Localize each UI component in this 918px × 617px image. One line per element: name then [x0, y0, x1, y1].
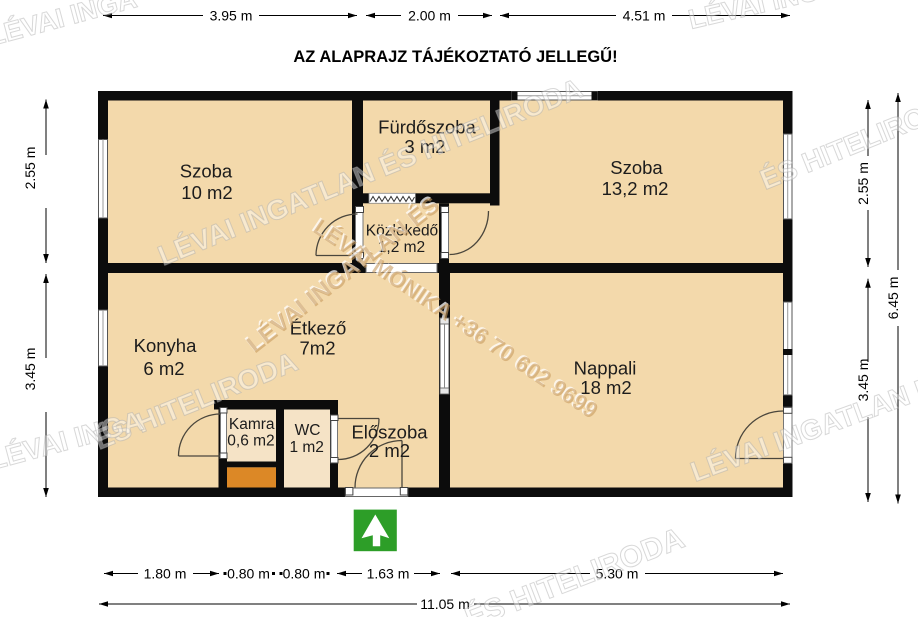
- svg-text:AZ ALAPRAJZ TÁJÉKOZTATÓ JELLEG: AZ ALAPRAJZ TÁJÉKOZTATÓ JELLEGŰ!: [293, 47, 617, 66]
- svg-text:0.80 m: 0.80 m: [227, 566, 270, 582]
- svg-text:Konyha: Konyha: [134, 335, 197, 356]
- svg-text:10 m2: 10 m2: [181, 182, 232, 203]
- svg-text:1.63 m: 1.63 m: [367, 566, 410, 582]
- svg-text:1 m2: 1 m2: [289, 439, 323, 456]
- svg-text:6.45 m: 6.45 m: [885, 277, 901, 320]
- svg-text:7m2: 7m2: [300, 338, 336, 359]
- svg-text:2 m2: 2 m2: [369, 440, 410, 461]
- svg-text:3.45 m: 3.45 m: [22, 348, 38, 391]
- svg-text:13,2 m2: 13,2 m2: [602, 178, 669, 199]
- svg-text:1.80 m: 1.80 m: [144, 566, 187, 582]
- svg-text:2.55 m: 2.55 m: [855, 162, 871, 205]
- svg-text:Kamra: Kamra: [229, 416, 275, 433]
- svg-text:4.51 m: 4.51 m: [623, 8, 666, 24]
- svg-text:Nappali: Nappali: [574, 358, 637, 379]
- svg-text:Szoba: Szoba: [180, 161, 233, 182]
- svg-text:3.95 m: 3.95 m: [210, 8, 253, 24]
- svg-text:Szoba: Szoba: [610, 157, 663, 178]
- svg-text:0.80 m: 0.80 m: [283, 566, 326, 582]
- svg-text:6 m2: 6 m2: [143, 358, 184, 379]
- svg-text:0,6 m2: 0,6 m2: [227, 433, 274, 450]
- svg-text:2.55 m: 2.55 m: [22, 147, 38, 190]
- svg-text:WC: WC: [295, 422, 321, 439]
- svg-text:2.00 m: 2.00 m: [408, 8, 451, 24]
